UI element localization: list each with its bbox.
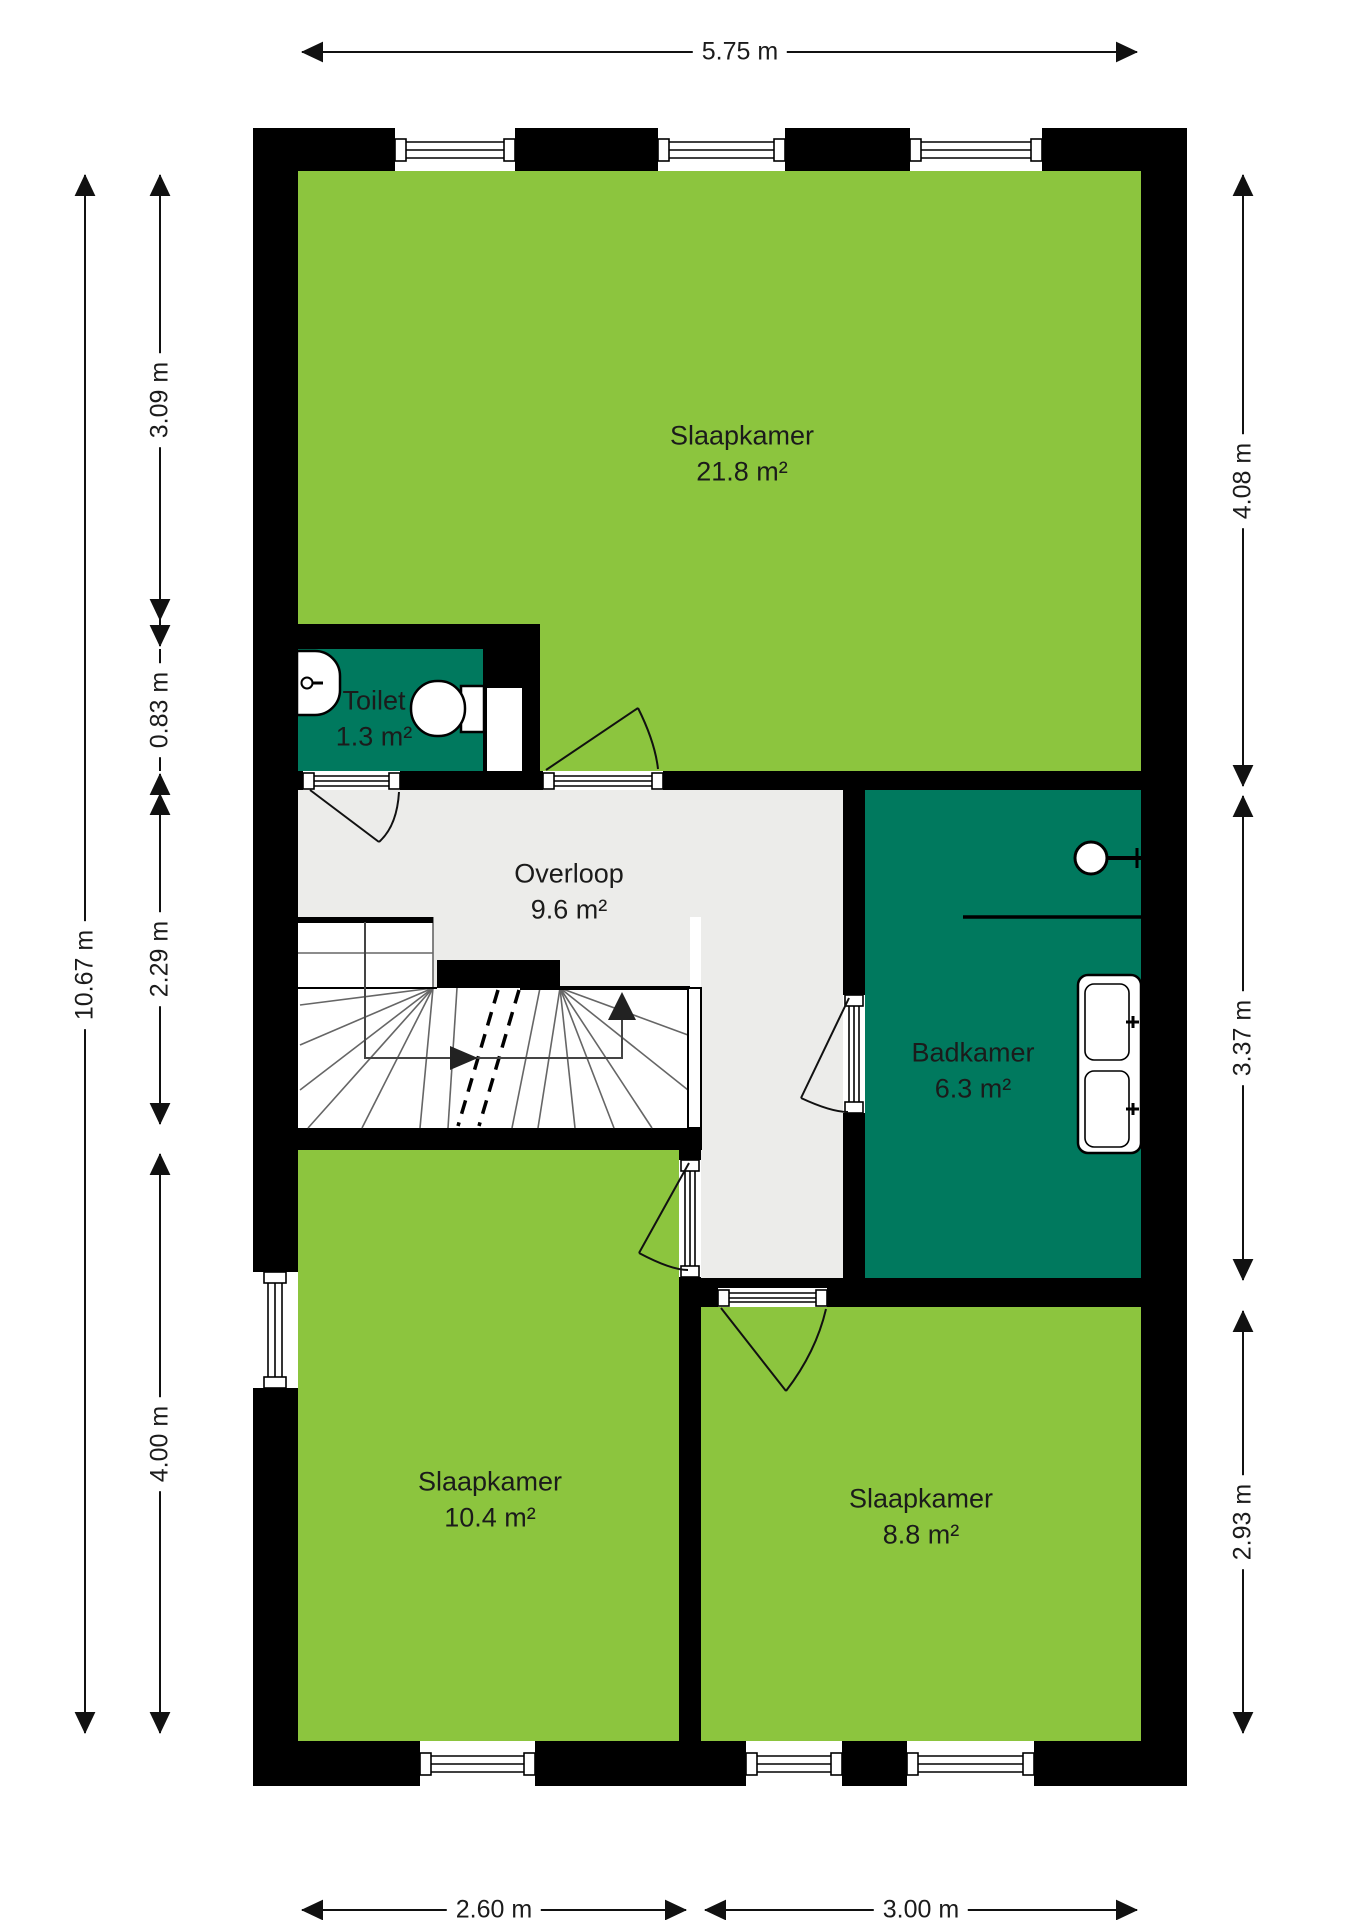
wall-left [253, 128, 298, 1786]
room-area: 9.6 m² [514, 892, 624, 928]
room-name: Badkamer [911, 1035, 1034, 1071]
room-area: 1.3 m² [336, 719, 413, 755]
room-label-slaapkamer-2: Slaapkamer 10.4 m² [418, 1464, 562, 1535]
floor-plan-drawing [0, 0, 1358, 1920]
stair-balustrade [688, 988, 701, 1128]
room-name: Slaapkamer [418, 1464, 562, 1500]
floor-plan: Slaapkamer 21.8 m² Toilet 1.3 m² Overloo… [0, 0, 1358, 1920]
room-area: 8.8 m² [849, 1517, 993, 1553]
room-name: Toilet [336, 683, 413, 719]
room-label-slaapkamer-3: Slaapkamer 8.8 m² [849, 1481, 993, 1552]
wall-under-stairs [253, 1128, 702, 1150]
room-name: Slaapkamer [849, 1481, 993, 1517]
room-label-badkamer: Badkamer 6.3 m² [911, 1035, 1034, 1106]
dim-label-left-3: 2.29 m [144, 912, 177, 1006]
toilet-icon [411, 681, 484, 736]
dim-label-left-total: 10.67 m [69, 921, 102, 1029]
window-left [253, 1272, 298, 1388]
window-bottom-2 [746, 1741, 842, 1786]
room-label-slaapkamer-1: Slaapkamer 21.8 m² [670, 418, 814, 489]
room-slaapkamer-2-floor [298, 1150, 679, 1741]
window-top-3 [910, 128, 1042, 171]
room-area: 10.4 m² [418, 1500, 562, 1536]
window-top-2 [658, 128, 785, 171]
sink-icon [297, 651, 340, 715]
dim-label-right-1: 4.08 m [1227, 434, 1260, 528]
dim-label-left-4: 4.00 m [144, 1397, 177, 1491]
wall-stair-divider [437, 960, 560, 988]
room-name: Slaapkamer [670, 418, 814, 454]
toilet-wall-niche [487, 688, 522, 771]
dim-label-right-2: 3.37 m [1227, 991, 1260, 1085]
wall-right [1141, 128, 1187, 1786]
overloop-corridor-floor [701, 917, 843, 1288]
double-washbasin-icon [1078, 975, 1141, 1153]
dim-label-left-2: 0.83 m [144, 663, 177, 757]
dim-label-bottom-1: 2.60 m [447, 1894, 541, 1920]
wall-bottom [253, 1741, 1187, 1786]
room-label-overloop: Overloop 9.6 m² [514, 856, 624, 927]
window-top-1 [395, 128, 515, 171]
room-label-toilet: Toilet 1.3 m² [336, 683, 413, 754]
room-area: 21.8 m² [670, 454, 814, 490]
dim-label-right-3: 2.93 m [1227, 1475, 1260, 1569]
window-bottom-3 [907, 1741, 1034, 1786]
dim-label-bottom-2: 3.00 m [874, 1894, 968, 1920]
dim-label-top: 5.75 m [693, 36, 787, 69]
window-bottom-1 [420, 1741, 535, 1786]
dim-label-left-1: 3.09 m [144, 353, 177, 447]
room-name: Overloop [514, 856, 624, 892]
room-area: 6.3 m² [911, 1071, 1034, 1107]
